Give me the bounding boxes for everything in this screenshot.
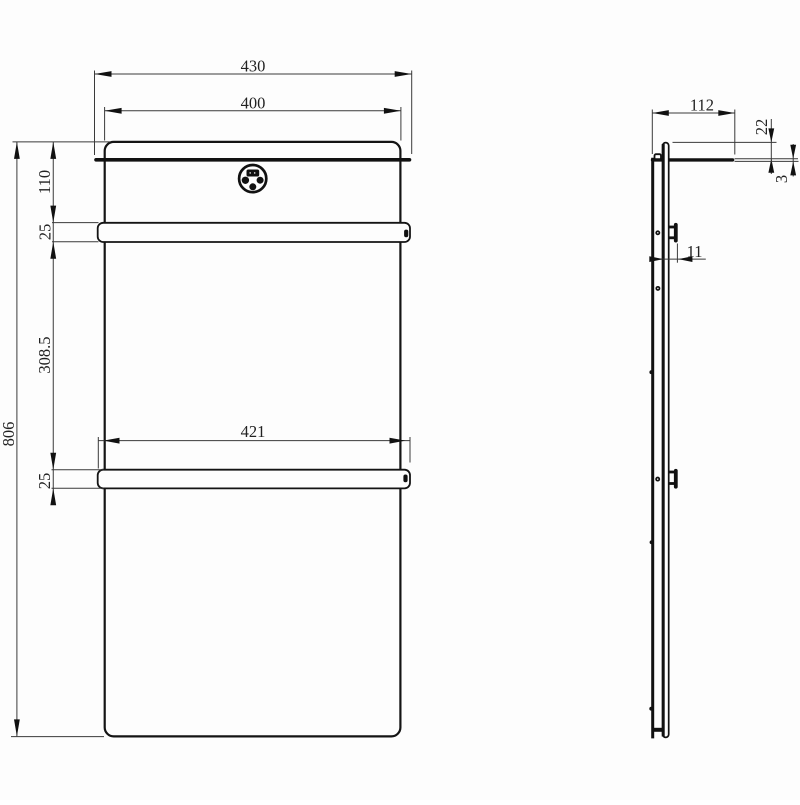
svg-text:430: 430	[241, 57, 266, 76]
svg-text:112: 112	[690, 95, 714, 114]
svg-text:3: 3	[772, 175, 791, 183]
svg-text:308.5: 308.5	[35, 336, 54, 373]
svg-text:25: 25	[35, 473, 54, 490]
svg-text:25: 25	[35, 224, 54, 241]
svg-text:22: 22	[752, 119, 771, 136]
svg-text:400: 400	[241, 93, 266, 112]
svg-text:421: 421	[241, 422, 266, 441]
svg-text:110: 110	[35, 170, 54, 194]
svg-text:806: 806	[0, 422, 18, 447]
svg-text:11: 11	[687, 242, 703, 261]
